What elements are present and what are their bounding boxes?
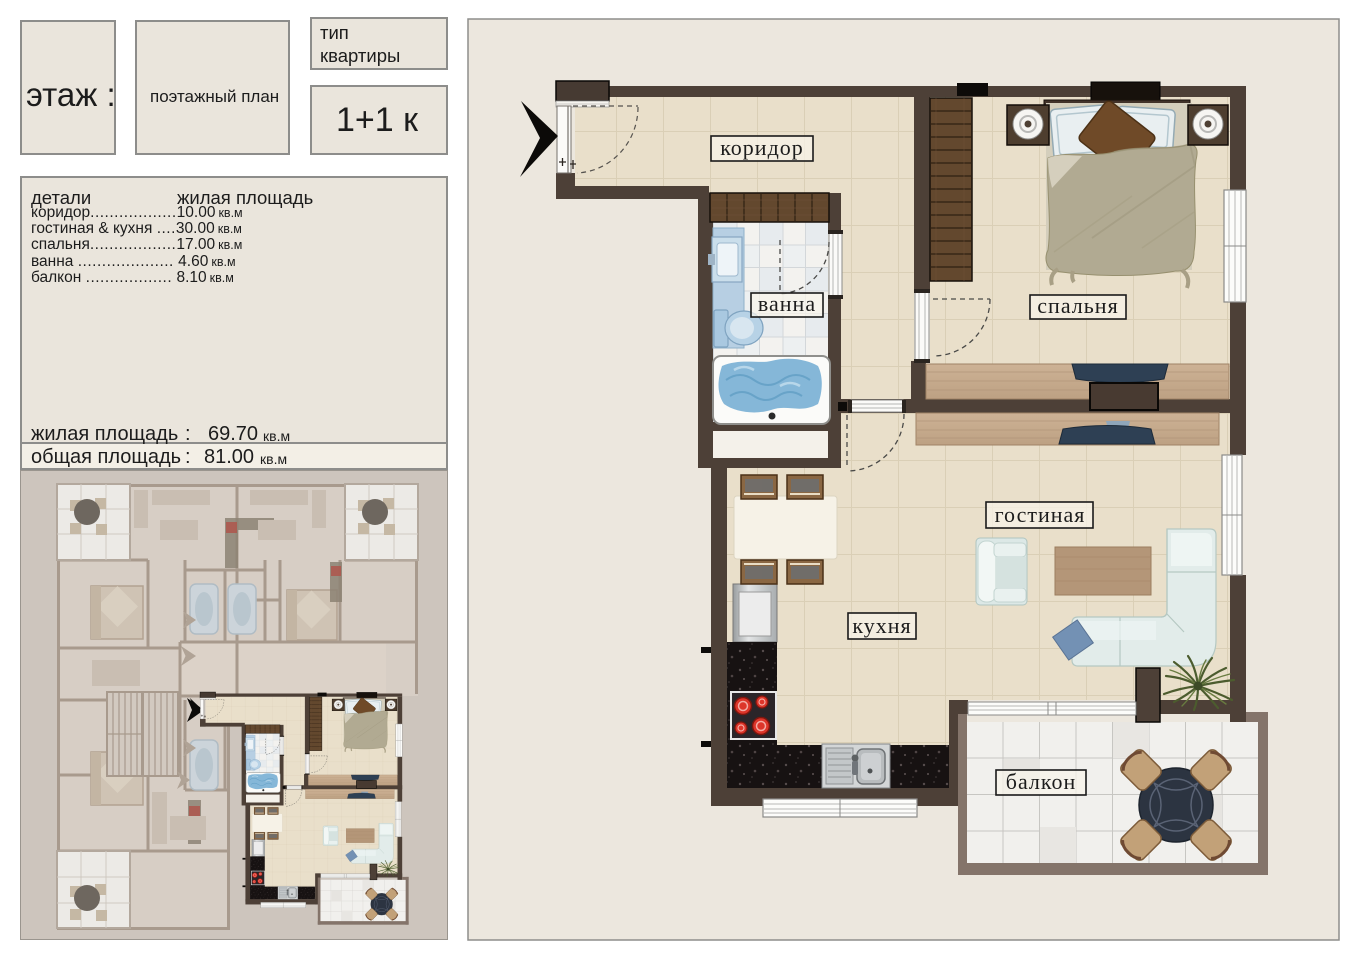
svg-text:кухня: кухня [852, 613, 911, 638]
svg-text:коридор: коридор [720, 135, 804, 160]
svg-text:спальня: спальня [1037, 293, 1118, 318]
svg-text:гостиная: гостиная [995, 502, 1086, 527]
svg-text:балкон: балкон [1006, 769, 1076, 794]
svg-text:ванна: ванна [758, 291, 816, 316]
